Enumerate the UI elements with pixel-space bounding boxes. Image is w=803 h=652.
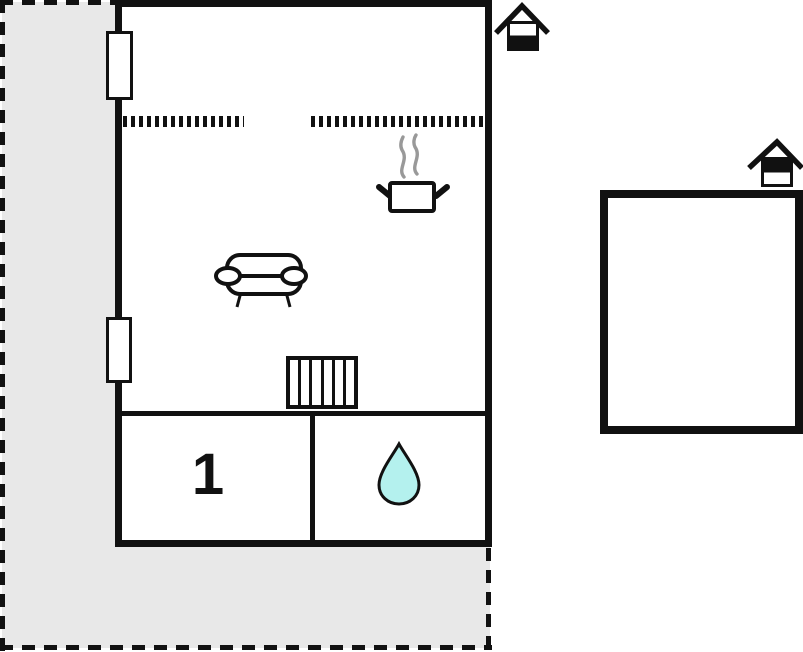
window-icon: [106, 31, 133, 100]
window-icon: [106, 317, 132, 383]
annex-building: [600, 190, 803, 434]
sofa-icon: [212, 250, 310, 310]
house-entrance-icon: [494, 2, 550, 51]
bedroom-number: 1: [180, 440, 236, 510]
radiator-icon: [286, 356, 358, 409]
interior-wall-vertical: [310, 414, 315, 541]
steam-icon: [401, 135, 417, 177]
plot-boundary-right: [486, 548, 491, 650]
partial-wall-dotted-right: [311, 116, 485, 127]
plot-boundary-left: [0, 0, 5, 652]
water-drop-icon: [374, 441, 424, 507]
plot-boundary-bottom: [0, 645, 492, 650]
cooking-pot-icon: [374, 133, 452, 217]
house-entrance-icon: [746, 137, 803, 187]
partial-wall-dotted-left: [123, 116, 244, 127]
floor-plan: 1: [0, 0, 803, 652]
interior-wall-horizontal: [122, 411, 485, 416]
